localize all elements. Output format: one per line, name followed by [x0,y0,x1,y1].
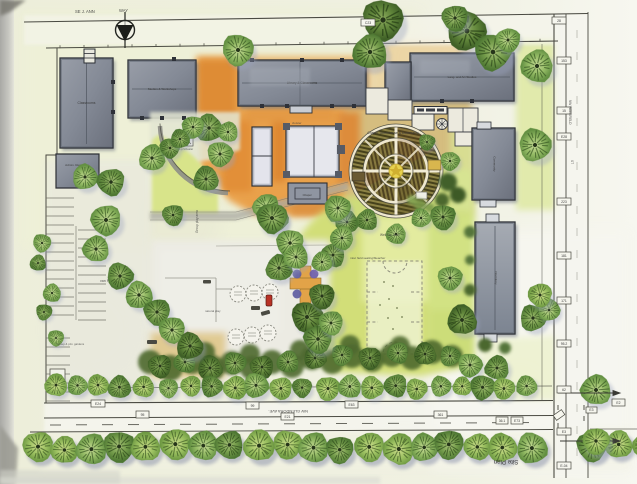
svg-text:WAY: WAY [119,8,128,13]
svg-text:E24: E24 [95,402,101,406]
svg-text:misc field seating/bleacher: misc field seating/bleacher [350,256,385,260]
svg-text:181: 181 [561,254,567,258]
svg-text:E21: E21 [284,415,290,419]
svg-text:C23: C23 [365,21,371,25]
svg-text:99: 99 [251,404,255,408]
svg-text:E73: E73 [514,419,520,423]
svg-text:36.1: 36.1 [499,419,506,423]
svg-text:361: 361 [438,413,444,417]
svg-text:95: 95 [141,413,145,417]
svg-text:Classrooms: Classrooms [78,101,96,105]
svg-text:E2: E2 [616,401,620,405]
svg-text:E-04: E-04 [560,464,567,468]
svg-text:ST: ST [570,160,574,164]
svg-text:E63: E63 [348,403,354,407]
svg-text:Group & priv. gardens: Group & priv. gardens [57,342,85,346]
svg-text:223: 223 [561,200,567,204]
svg-text:153: 153 [561,59,567,63]
svg-text:Chapel, Greenhouse & Community: Chapel, Greenhouse & Community [367,131,418,135]
svg-text:NW GLENDORA AVE.: NW GLENDORA AVE. [268,409,308,414]
svg-text:Group play area: Group play area [195,210,199,233]
svg-text:95.2: 95.2 [561,342,568,346]
svg-text:15: 15 [562,109,566,113]
svg-text:Community: Community [493,156,497,172]
svg-text:Site Plan: Site Plan [493,458,518,465]
svg-text:SE J. ANN: SE J. ANN [75,9,95,14]
svg-text:E3: E3 [589,408,593,412]
svg-text:171: 171 [561,299,567,303]
svg-text:Lang. and Art Studios: Lang. and Art Studios [448,75,477,79]
svg-text:NW WAKEFIELD: NW WAKEFIELD [568,100,572,125]
svg-text:natural play: natural play [205,309,221,313]
svg-text:Studios & Workshops: Studios & Workshops [148,87,177,91]
svg-text:Chapel: Chapel [303,193,312,197]
svg-text:Dormitory: Dormitory [494,271,498,285]
svg-text:Well Fld. lawn: Well Fld. lawn [380,233,400,237]
svg-text:E28: E28 [561,135,567,139]
svg-text:28: 28 [557,19,561,23]
svg-text:cloister: cloister [292,121,302,125]
svg-text:E3: E3 [562,430,566,434]
svg-text:62: 62 [562,388,566,392]
